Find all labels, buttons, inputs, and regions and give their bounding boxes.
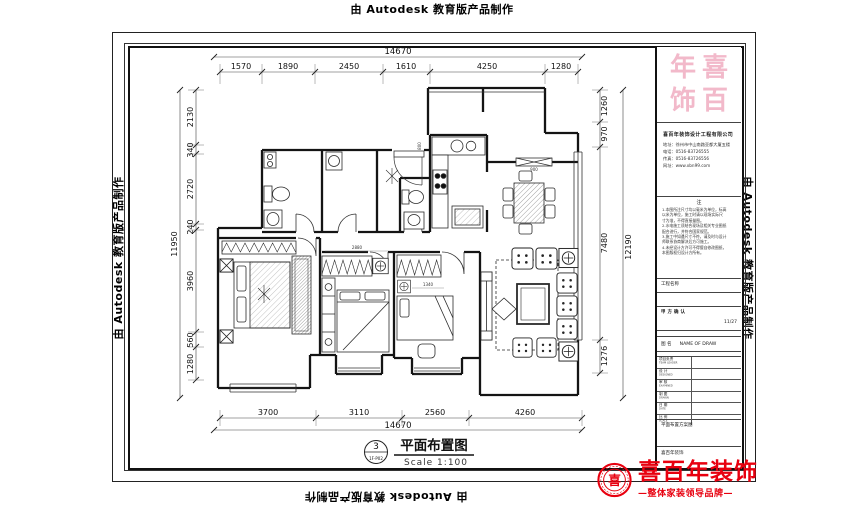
dim-label-small: 1340 — [423, 282, 434, 287]
title-block-company-info: 喜百年装饰设计工程有限公司 地址：徐州市中山南路亚都大厦五楼 电话：0516-8… — [657, 123, 741, 197]
brand-text: 喜百年装饰 —整体家装领导品牌— — [638, 461, 758, 499]
company-logo: 喜 喜百年装饰 —整体家装领导品牌— — [596, 453, 758, 507]
dim-label: 1260 — [600, 96, 609, 116]
dim-label: 1280 — [551, 62, 571, 71]
client-date: 11/27 — [661, 320, 737, 325]
brand-tagline: —整体家装领导品牌— — [638, 486, 758, 499]
company-contact-line: 网址：www.xbn99.com — [663, 162, 735, 169]
dim-label: 1570 — [231, 62, 251, 71]
dim-label: 240 — [186, 219, 195, 234]
dim-label: 14670 — [384, 47, 411, 57]
dim-label: 3110 — [349, 408, 369, 417]
client-row: 甲方确认 11/27 — [657, 307, 741, 331]
brand-seal-icon: 喜 — [596, 455, 633, 505]
caption-sheet-code: 1F-P02 — [369, 456, 383, 461]
plan-caption: 3 1F-P02 平面布置图 Scale 1:100 — [364, 437, 474, 468]
table-row: 审 核EXAMINED — [657, 380, 741, 392]
dim-label: 2560 — [425, 408, 445, 417]
seal-center-char: 喜 — [608, 473, 621, 489]
dim-label: 1276 — [600, 346, 609, 366]
drawing-label-cn: 图 名 — [661, 341, 672, 347]
dim-label: 1890 — [278, 62, 298, 71]
company-contact-line: 地址：徐州市中山南路亚都大厦五楼 — [663, 141, 735, 148]
dim-label: 11950 — [170, 231, 179, 256]
dim-label: 1280 — [186, 354, 195, 374]
client-label: 甲方确认 — [661, 310, 687, 315]
caption-number: 3 — [373, 442, 379, 452]
table-row: 制 图DRAWN — [657, 392, 741, 404]
company-name: 喜百年装饰设计工程有限公司 — [663, 131, 735, 138]
dim-label: 2450 — [339, 62, 359, 71]
seal-char: 饰 — [670, 88, 696, 114]
row-label-en: SCALE — [659, 419, 686, 423]
seal-char: 喜 — [702, 55, 728, 81]
dim-label: 560 — [186, 332, 195, 347]
brand-name: 喜百年装饰 — [638, 461, 758, 484]
note-line: 2.水电施工须结合现场及相关专业图纸 — [662, 223, 736, 228]
row-value — [692, 415, 741, 426]
seal-char: 年 — [670, 55, 696, 81]
dim-label: 340 — [186, 142, 195, 157]
drawing-sheet: 由 Autodesk 教育版产品制作 由 Autodesk 教育版产品制作 由 … — [0, 0, 860, 510]
caption-title: 平面布置图 — [400, 437, 468, 454]
title-block: 年 喜 饰 百 喜百年装饰设计工程有限公司 地址：徐州市中山南路亚都大厦五楼 电… — [655, 47, 741, 465]
dim-label: 2130 — [186, 107, 195, 127]
dim-label-small: 800 — [417, 142, 422, 150]
dim-label: 2720 — [186, 179, 195, 199]
dim-label-small: 2880 — [352, 245, 363, 250]
project-name-row: 工程名称 — [657, 279, 741, 293]
title-block-seal: 年 喜 饰 百 — [657, 47, 741, 123]
signature-table: 项目负责TEAM LEADER 设 计DESIGNED 审 核EXAMINED … — [657, 357, 741, 420]
dim-label: 970 — [600, 126, 609, 141]
dim-label: 4250 — [477, 62, 497, 71]
caption-scale: Scale 1:100 — [404, 458, 468, 468]
dim-label: 7480 — [600, 233, 609, 253]
row-label-en: EXAMINED — [659, 384, 686, 388]
dim-label: 3960 — [186, 271, 195, 291]
dim-label: 14670 — [384, 421, 411, 431]
notes-title: 注 — [662, 199, 736, 206]
drawing-name-row: 图 名 NAME OF DRAW — [657, 337, 741, 352]
row-value — [692, 403, 741, 414]
row-label-en: TEAM LEADER — [659, 361, 686, 365]
table-row: 项目负责TEAM LEADER — [657, 357, 741, 369]
dim-label: 3700 — [258, 408, 278, 417]
row-value — [692, 369, 741, 380]
dim-label: 4260 — [515, 408, 535, 417]
row-value — [692, 392, 741, 403]
dim-label-small: 900 — [530, 167, 538, 172]
note-line: 本图版权归设计方所有。 — [662, 250, 736, 255]
company-contact-line: 传真：0516-83726556 — [663, 155, 735, 162]
dim-label: 12190 — [624, 234, 633, 259]
dim-label: 1610 — [396, 62, 416, 71]
title-block-notes: 注 1.本图所注尺寸均以毫米为单位，标高 以米为单位，施工时请以现场实际尺 寸为… — [657, 197, 741, 279]
seal-char: 百 — [702, 88, 728, 114]
company-contact-line: 电话：0516-83726555 — [663, 148, 735, 155]
furniture-layer — [220, 137, 578, 361]
row-label-en: DATE — [659, 407, 686, 411]
row-label-en: DESIGNED — [659, 373, 686, 377]
drawing-label-en: NAME OF DRAW — [680, 342, 717, 347]
table-row: 日 期DATE — [657, 403, 741, 415]
blank-row — [657, 293, 741, 307]
row-value — [692, 357, 741, 368]
table-row: 设 计DESIGNED — [657, 369, 741, 381]
row-label-en: DRAWN — [659, 396, 686, 400]
row-value — [692, 380, 741, 391]
